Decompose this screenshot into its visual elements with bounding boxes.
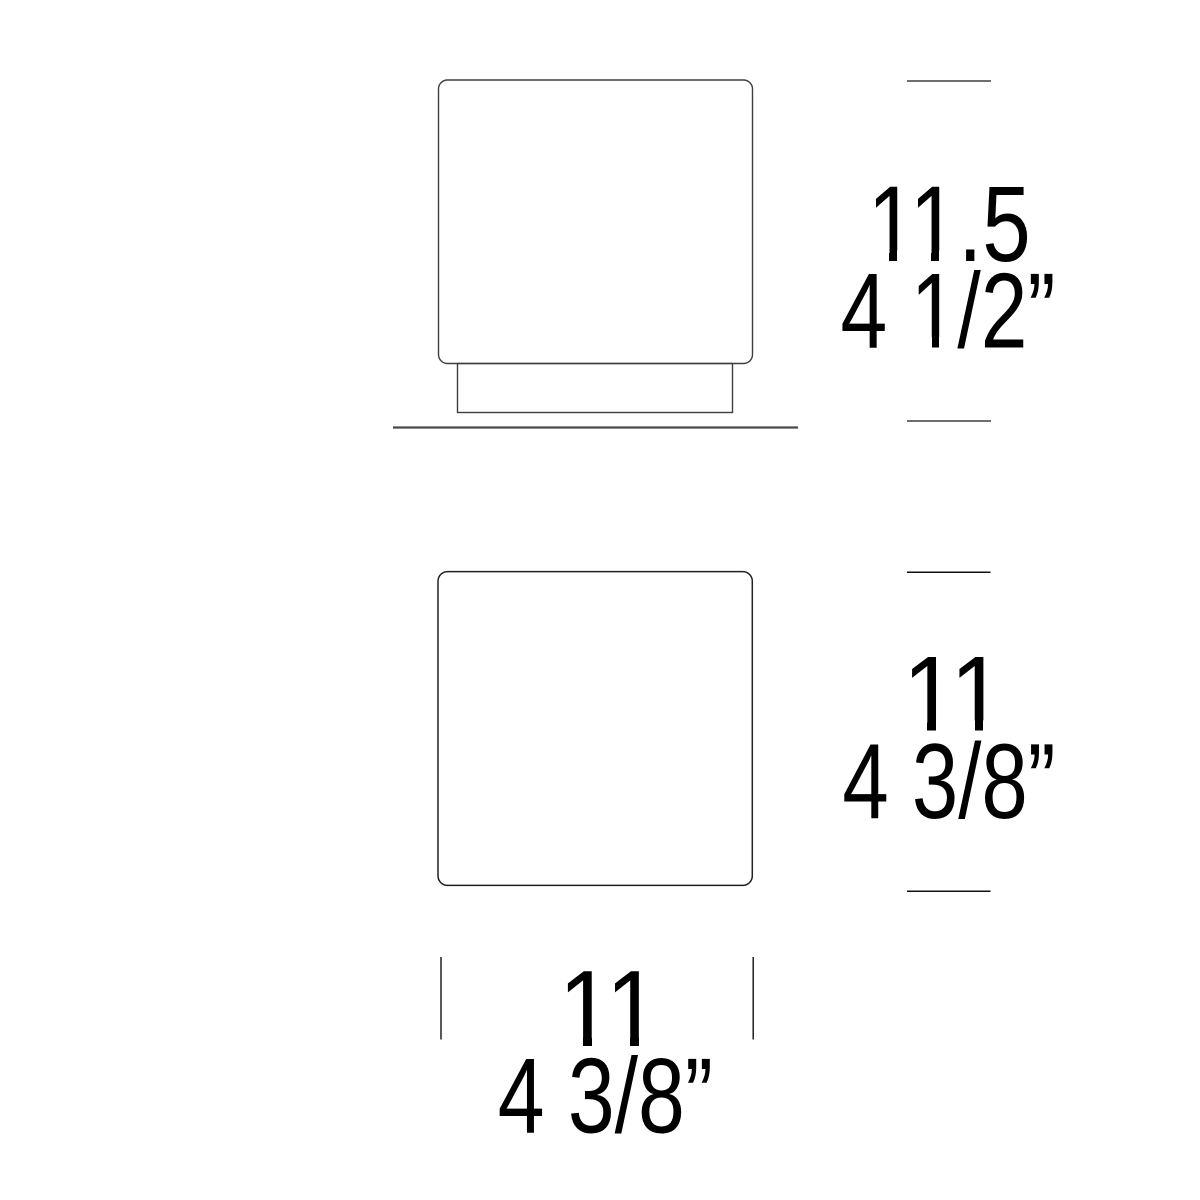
svg-text:4 3/8”: 4 3/8” xyxy=(498,1037,713,1156)
svg-text:4 1/2”: 4 1/2” xyxy=(841,252,1056,371)
svg-text:4 3/8”: 4 3/8” xyxy=(842,722,1055,841)
